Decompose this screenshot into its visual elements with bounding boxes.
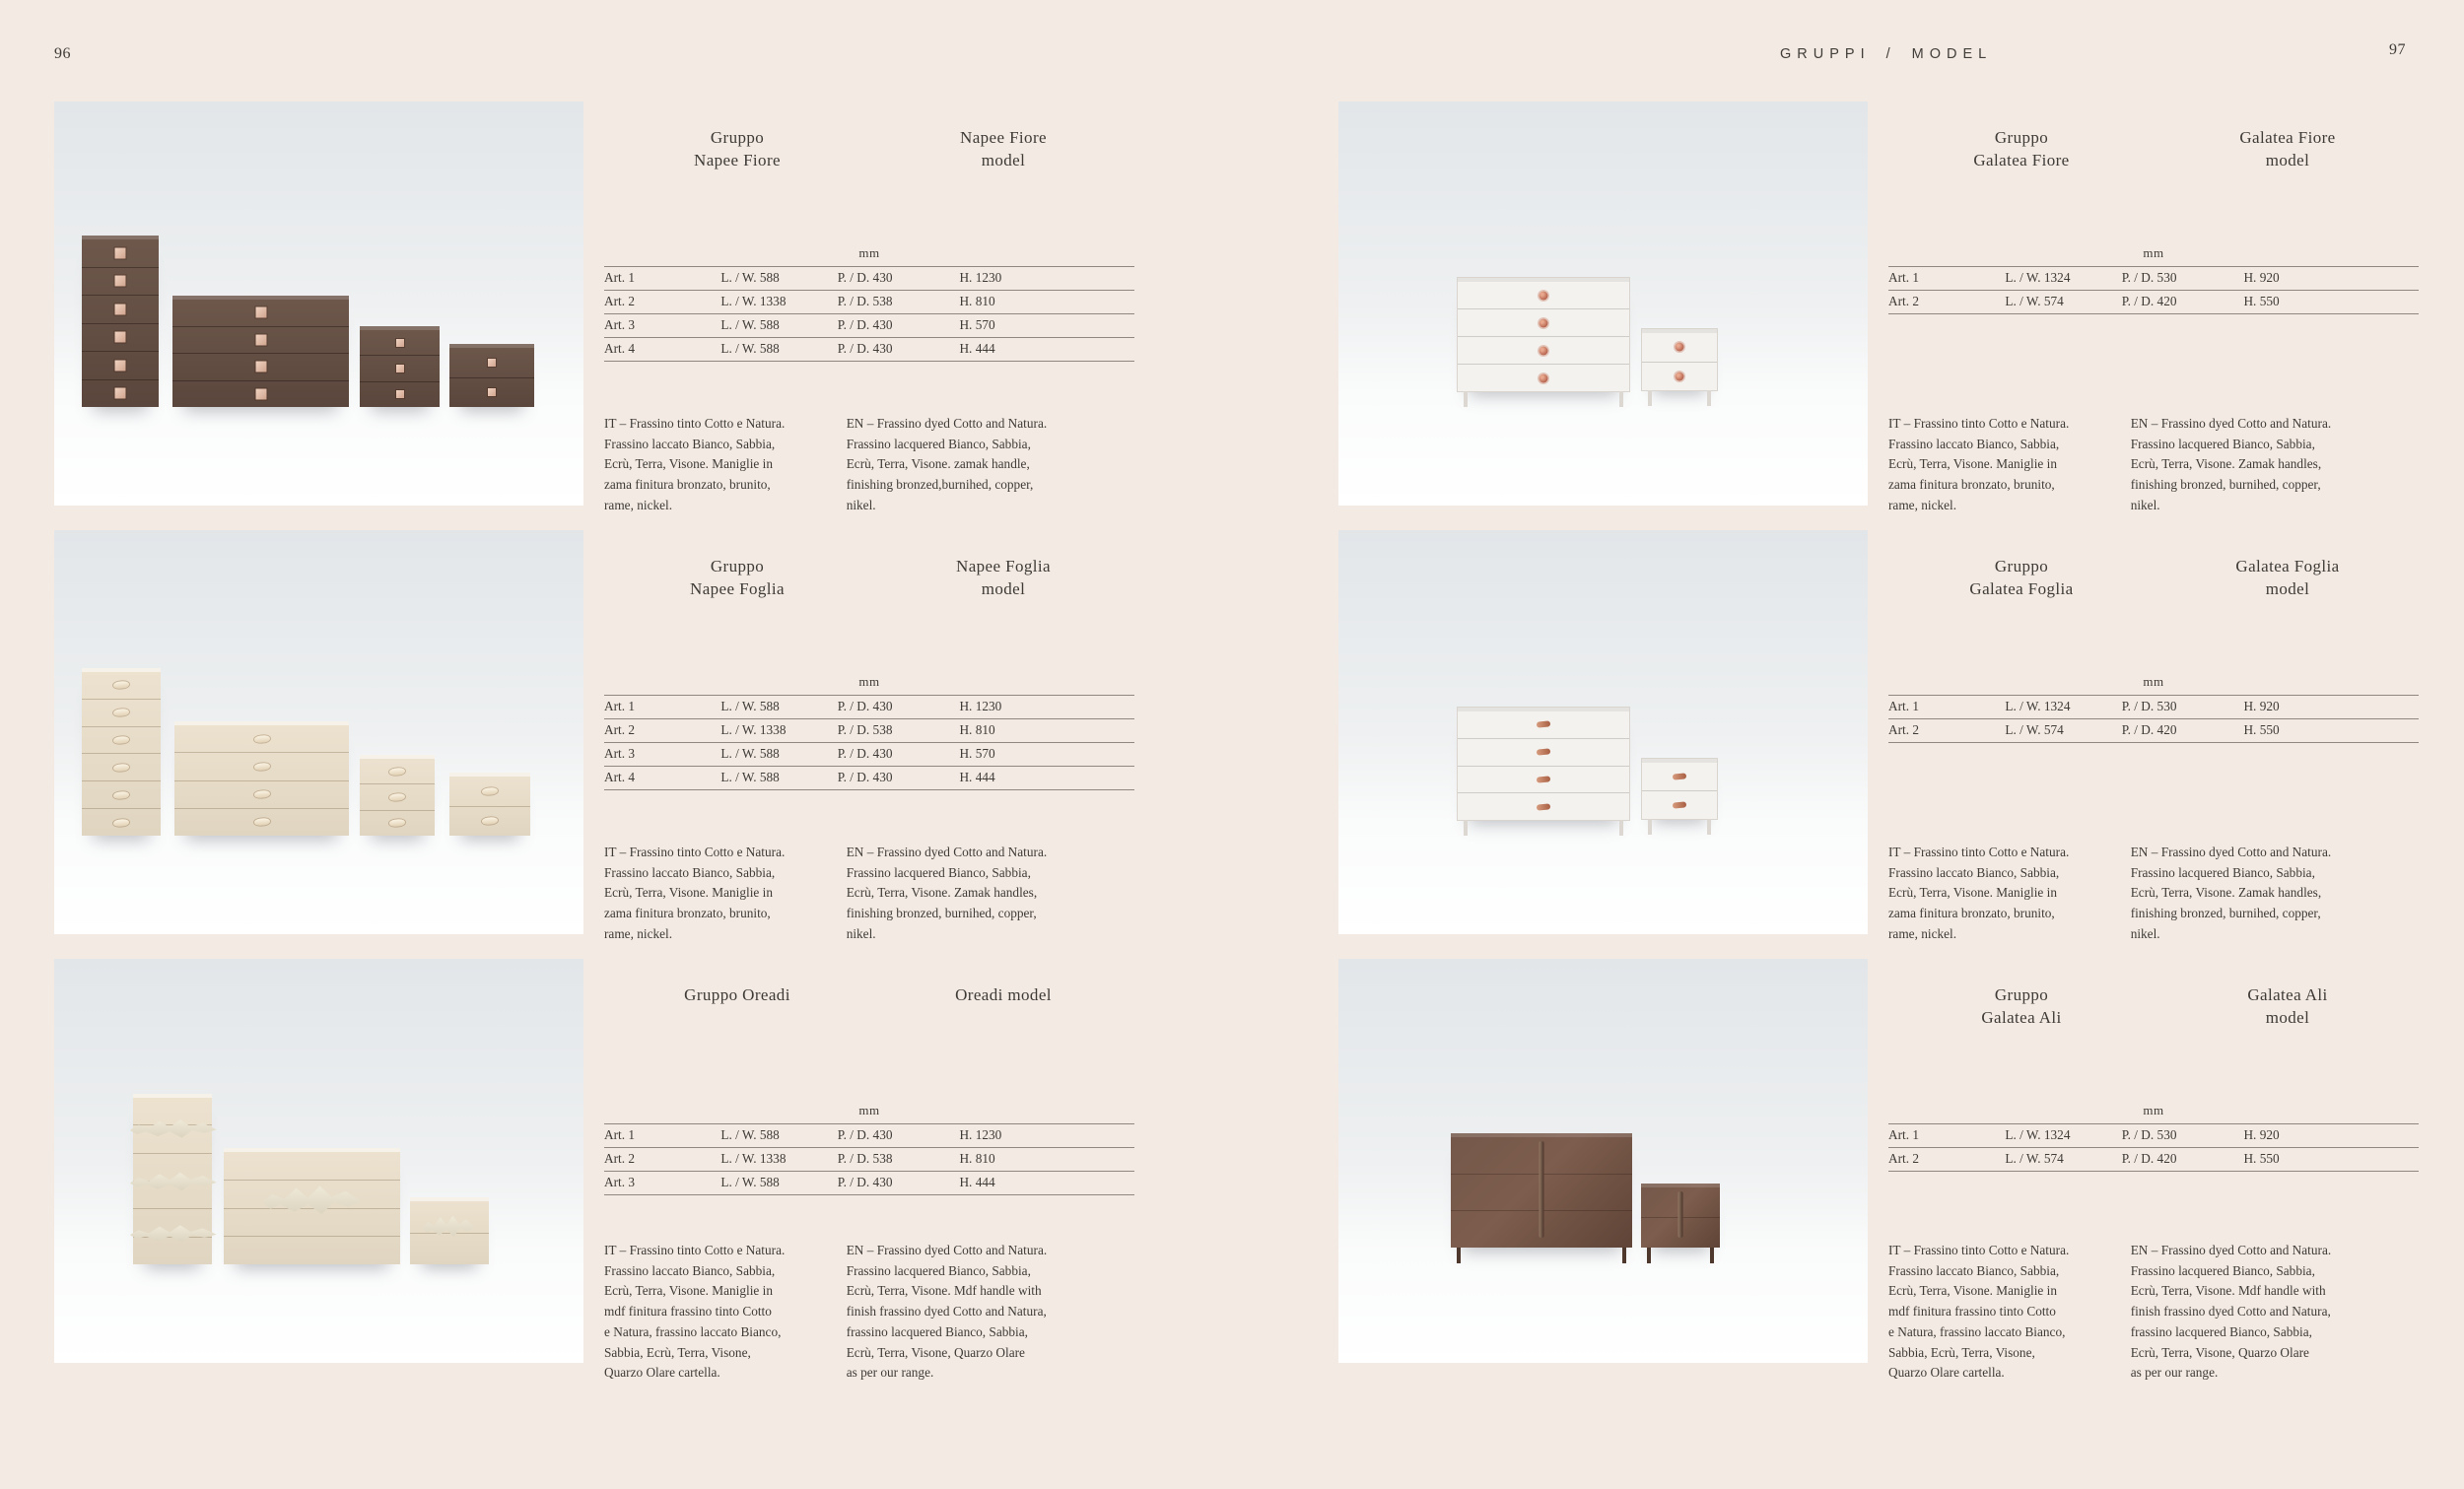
group-title-en: Oreadi model [870, 984, 1136, 1007]
dimension-row: Art. 2L. / W. 1338P. / D. 538H. 810 [604, 719, 1134, 743]
drawer-front [449, 806, 530, 837]
drawer-front [172, 300, 349, 326]
drawer-handle [1540, 373, 1548, 382]
furniture-leg [1619, 391, 1623, 407]
group-info: Gruppo Galatea Fiore Galatea Fiore model… [1888, 102, 2421, 506]
dimension-row: Art. 1L. / W. 1324P. / D. 530H. 920 [1888, 696, 2419, 719]
spread-title: GRUPPI / MODEL [1780, 46, 1992, 62]
dimension-row: Art. 3L. / W. 588P. / D. 430H. 444 [604, 1172, 1134, 1195]
drawer-handle [113, 736, 130, 744]
drawer-handle [115, 276, 126, 287]
drawer-handle [396, 365, 404, 372]
dimension-cell-lw: L. / W. 574 [2005, 291, 2121, 314]
group-title-it: Gruppo Galatea Fiore [1888, 127, 2155, 172]
drawer-handle [115, 304, 126, 314]
drawer-handle [113, 764, 130, 772]
drawer-front [1458, 766, 1629, 793]
group-title-it: Gruppo Galatea Ali [1888, 984, 2155, 1030]
furniture-leg [1648, 819, 1652, 835]
dimension-cell-h: H. 810 [959, 1148, 1134, 1172]
drawer-handle [389, 793, 406, 801]
drawer-handle [253, 734, 270, 742]
group-title-en: Galatea Foglia model [2155, 556, 2421, 601]
small-chest-illustration [360, 326, 440, 407]
description-en: EN – Frassino dyed Cotto and Natura. Fra… [847, 843, 1136, 945]
description-en: EN – Frassino dyed Cotto and Natura. Fra… [847, 414, 1136, 516]
dimension-cell-art: Art. 2 [604, 1148, 720, 1172]
dimension-cell-h: H. 920 [2243, 1124, 2419, 1148]
dimension-cell-pd: P. / D. 538 [838, 291, 960, 314]
drawer-handle [1537, 776, 1551, 782]
dimension-cell-art: Art. 3 [604, 743, 720, 767]
furniture-leg [1647, 1248, 1651, 1263]
drawer-front [82, 323, 159, 352]
group-title-it: Gruppo Galatea Foglia [1888, 556, 2155, 601]
furniture-leg [1648, 390, 1652, 406]
dimension-cell-art: Art. 1 [604, 696, 720, 719]
dimension-cell-pd: P. / D. 538 [838, 1148, 960, 1172]
dimension-cell-pd: P. / D. 430 [838, 1124, 960, 1148]
drawer-front [172, 353, 349, 380]
drawer-handle [1537, 748, 1551, 755]
nightstand-illustration [1641, 1184, 1720, 1248]
drawer-handle [253, 790, 270, 798]
napee-fiore-photo [54, 102, 583, 506]
furniture-leg [1464, 820, 1468, 836]
group-section-galatea-fiore: Gruppo Galatea Fiore Galatea Fiore model… [1338, 102, 2420, 506]
dimension-cell-h: H. 810 [959, 291, 1134, 314]
drawer-front [449, 348, 534, 377]
group-title-it: Gruppo Napee Foglia [604, 556, 870, 601]
description-it: IT – Frassino tinto Cotto e Natura. Fras… [604, 843, 847, 945]
dimension-cell-pd: P. / D. 430 [838, 1172, 960, 1195]
dimension-table: Art. 1L. / W. 588P. / D. 430H. 1230Art. … [604, 1123, 1134, 1195]
dimension-table: Art. 1L. / W. 1324P. / D. 530H. 920Art. … [1888, 266, 2419, 314]
dimension-cell-pd: P. / D. 420 [2122, 1148, 2244, 1172]
furniture-leg [1707, 390, 1711, 406]
drawer-front [1458, 364, 1629, 391]
drawer-front [449, 777, 530, 806]
drawer-front [1458, 711, 1629, 738]
drawer-front [133, 1237, 212, 1264]
drawer-front [1458, 308, 1629, 336]
drawer-handle [115, 247, 126, 258]
drawer-front [1642, 362, 1717, 391]
description-it: IT – Frassino tinto Cotto e Natura. Fras… [1888, 843, 2131, 945]
drawer-front [174, 725, 349, 752]
dimension-cell-art: Art. 1 [1888, 267, 2005, 291]
group-section-galatea-foglia: Gruppo Galatea Foglia Galatea Foglia mod… [1338, 530, 2420, 934]
dresser-illustration [1458, 278, 1629, 391]
drawer-handle [389, 767, 406, 775]
drawer-handle [253, 818, 270, 826]
drawer-front [82, 295, 159, 323]
dimension-cell-lw: L. / W. 1324 [2005, 1124, 2121, 1148]
unit-label: mm [604, 245, 1134, 261]
dimension-table: Art. 1L. / W. 1324P. / D. 530H. 920Art. … [1888, 1123, 2419, 1172]
description-en: EN – Frassino dyed Cotto and Natura. Fra… [2131, 843, 2421, 945]
dimension-cell-lw: L. / W. 588 [720, 267, 837, 291]
dimension-cell-h: H. 570 [959, 743, 1134, 767]
dimension-row: Art. 3L. / W. 588P. / D. 430H. 570 [604, 314, 1134, 338]
dimension-cell-lw: L. / W. 1338 [720, 719, 837, 743]
dimension-table: Art. 1L. / W. 588P. / D. 430H. 1230Art. … [604, 266, 1134, 362]
drawer-front [360, 330, 440, 355]
dimension-cell-art: Art. 2 [1888, 719, 2005, 743]
dimension-cell-art: Art. 1 [604, 267, 720, 291]
unit-label: mm [1888, 674, 2419, 690]
dimension-row: Art. 2L. / W. 574P. / D. 420H. 550 [1888, 719, 2419, 743]
dimension-cell-lw: L. / W. 588 [720, 696, 837, 719]
drawer-handle [255, 388, 266, 399]
unit-label: mm [604, 1103, 1134, 1118]
dresser-illustration [224, 1148, 400, 1264]
dimension-cell-h: H. 444 [959, 338, 1134, 362]
dimension-cell-pd: P. / D. 430 [838, 267, 960, 291]
dimension-cell-h: H. 920 [2243, 267, 2419, 291]
drawer-front [360, 355, 440, 380]
drawer-handle [1540, 291, 1548, 300]
vertical-bar-handle [1678, 1191, 1683, 1238]
description-en: EN – Frassino dyed Cotto and Natura. Fra… [847, 1241, 1136, 1384]
drawer-front [174, 752, 349, 779]
drawer-front [133, 1153, 212, 1181]
group-section-galatea-ali: Gruppo Galatea Ali Galatea Ali model mm … [1338, 959, 2420, 1363]
group-title-en: Galatea Fiore model [2155, 127, 2421, 172]
drawer-front [82, 780, 161, 808]
dimension-cell-h: H. 444 [959, 1172, 1134, 1195]
drawer-handle [1676, 343, 1684, 352]
dresser-illustration [174, 721, 349, 836]
drawer-handle [482, 787, 499, 795]
drawer-handle [113, 791, 130, 799]
dimension-row: Art. 2L. / W. 1338P. / D. 538H. 810 [604, 291, 1134, 314]
nightstand-illustration [1642, 329, 1717, 390]
drawer-front [82, 379, 159, 408]
furniture-leg [1619, 820, 1623, 836]
drawer-handle [1540, 318, 1548, 327]
drawer-front [224, 1236, 400, 1264]
dresser-illustration [172, 296, 349, 407]
unit-label: mm [1888, 1103, 2419, 1118]
dimension-cell-lw: L. / W. 1324 [2005, 696, 2121, 719]
drawer-front [82, 672, 161, 699]
dimension-cell-art: Art. 2 [604, 719, 720, 743]
dimension-cell-art: Art. 3 [604, 1172, 720, 1195]
group-info: Gruppo Napee Foglia Napee Foglia model m… [604, 530, 1136, 934]
description-it: IT – Frassino tinto Cotto e Natura. Fras… [1888, 414, 2131, 516]
dimension-cell-lw: L. / W. 1324 [2005, 267, 2121, 291]
dimension-cell-pd: P. / D. 430 [838, 767, 960, 790]
drawer-front [360, 810, 435, 836]
dimension-row: Art. 2L. / W. 574P. / D. 420H. 550 [1888, 291, 2419, 314]
description-it: IT – Frassino tinto Cotto e Natura. Fras… [604, 414, 847, 516]
drawer-handle [113, 709, 130, 716]
drawer-handle [1537, 803, 1551, 810]
drawer-front [82, 267, 159, 296]
dimension-cell-h: H. 810 [959, 719, 1134, 743]
unit-label: mm [604, 674, 1134, 690]
group-section-oreadi: Gruppo Oreadi Oreadi model mm Art. 1L. /… [54, 959, 1135, 1363]
drawer-front [82, 808, 161, 836]
drawer-front [82, 753, 161, 780]
page-number-left: 96 [54, 45, 71, 63]
dimension-table: Art. 1L. / W. 1324P. / D. 530H. 920Art. … [1888, 695, 2419, 743]
drawer-handle [389, 819, 406, 827]
description-it: IT – Frassino tinto Cotto e Natura. Fras… [604, 1241, 847, 1384]
group-title-en: Napee Foglia model [870, 556, 1136, 601]
nightstand-illustration [449, 344, 534, 407]
furniture-leg [1464, 391, 1468, 407]
dimension-row: Art. 4L. / W. 588P. / D. 430H. 444 [604, 767, 1134, 790]
drawer-handle [255, 362, 266, 372]
dimension-cell-h: H. 570 [959, 314, 1134, 338]
nightstand-illustration [410, 1197, 489, 1264]
drawer-front [1642, 333, 1717, 362]
furniture-leg [1710, 1248, 1714, 1263]
tall-chest-illustration [82, 236, 159, 407]
dimension-row: Art. 2L. / W. 574P. / D. 420H. 550 [1888, 1148, 2419, 1172]
drawer-front [1458, 282, 1629, 308]
dimension-row: Art. 3L. / W. 588P. / D. 430H. 570 [604, 743, 1134, 767]
dimension-row: Art. 1L. / W. 1324P. / D. 530H. 920 [1888, 1124, 2419, 1148]
page-number-right: 97 [2389, 41, 2406, 59]
dimension-cell-art: Art. 2 [1888, 1148, 2005, 1172]
dimension-cell-lw: L. / W. 1338 [720, 1148, 837, 1172]
dimension-cell-art: Art. 2 [1888, 291, 2005, 314]
dimension-cell-art: Art. 1 [1888, 1124, 2005, 1148]
dimension-cell-h: H. 1230 [959, 1124, 1134, 1148]
drawer-front [1458, 792, 1629, 820]
nightstand-illustration [449, 773, 530, 836]
dimension-cell-h: H. 550 [2243, 1148, 2419, 1172]
dimension-cell-lw: L. / W. 574 [2005, 1148, 2121, 1172]
group-section-napee-fiore: Gruppo Napee Fiore Napee Fiore model mm … [54, 102, 1135, 506]
dimension-row: Art. 4L. / W. 588P. / D. 430H. 444 [604, 338, 1134, 362]
dimension-cell-h: H. 1230 [959, 696, 1134, 719]
group-title-en: Napee Fiore model [870, 127, 1136, 172]
group-title-it: Gruppo Oreadi [604, 984, 870, 1007]
drawer-handle [396, 390, 404, 398]
description-en: EN – Frassino dyed Cotto and Natura. Fra… [2131, 1241, 2421, 1384]
drawer-handle [482, 817, 499, 825]
dimension-cell-h: H. 550 [2243, 719, 2419, 743]
dimension-cell-pd: P. / D. 430 [838, 743, 960, 767]
group-title-en: Galatea Ali model [2155, 984, 2421, 1030]
drawer-front [1458, 738, 1629, 766]
drawer-front [133, 1098, 212, 1124]
furniture-leg [1707, 819, 1711, 835]
dimension-cell-lw: L. / W. 588 [720, 338, 837, 362]
dimension-cell-art: Art. 1 [1888, 696, 2005, 719]
dimension-cell-lw: L. / W. 588 [720, 314, 837, 338]
dimension-cell-lw: L. / W. 588 [720, 1124, 837, 1148]
dimension-row: Art. 1L. / W. 588P. / D. 430H. 1230 [604, 267, 1134, 291]
drawer-front [82, 699, 161, 726]
dresser-illustration [1451, 1133, 1632, 1248]
dimension-cell-pd: P. / D. 420 [2122, 719, 2244, 743]
vertical-bar-handle [1540, 1141, 1544, 1237]
furniture-leg [1622, 1248, 1626, 1263]
dimension-cell-art: Art. 4 [604, 767, 720, 790]
dimension-cell-art: Art. 4 [604, 338, 720, 362]
drawer-handle [1540, 346, 1548, 355]
galatea-foglia-photo [1338, 530, 1868, 934]
drawer-handle [115, 332, 126, 343]
small-chest-illustration [360, 755, 435, 836]
drawer-handle [488, 388, 496, 396]
drawer-handle [488, 359, 496, 367]
tall-chest-illustration [82, 668, 161, 836]
dimension-table: Art. 1L. / W. 588P. / D. 430H. 1230Art. … [604, 695, 1134, 790]
dimension-cell-pd: P. / D. 538 [838, 719, 960, 743]
drawer-handle [255, 334, 266, 345]
dimension-cell-pd: P. / D. 530 [2122, 267, 2244, 291]
drawer-handle [255, 307, 266, 318]
furniture-leg [1457, 1248, 1461, 1263]
drawer-handle [113, 681, 130, 689]
drawer-handle [1537, 721, 1551, 728]
unit-label: mm [1888, 245, 2419, 261]
group-section-napee-foglia: Gruppo Napee Foglia Napee Foglia model m… [54, 530, 1135, 934]
description-it: IT – Frassino tinto Cotto e Natura. Fras… [1888, 1241, 2131, 1384]
catalog-spread: 96 GRUPPI / MODEL 97 Gruppo Napee Fiore … [0, 0, 2464, 1489]
drawer-front [449, 377, 534, 408]
drawer-front [172, 380, 349, 408]
oreadi-photo [54, 959, 583, 1363]
drawer-front [174, 808, 349, 836]
dimension-cell-lw: L. / W. 588 [720, 743, 837, 767]
drawer-handle [113, 818, 130, 826]
galatea-ali-photo [1338, 959, 1868, 1363]
drawer-front [224, 1152, 400, 1180]
dimension-cell-lw: L. / W. 574 [2005, 719, 2121, 743]
nightstand-illustration [1642, 759, 1717, 819]
dimension-cell-h: H. 1230 [959, 267, 1134, 291]
dimension-cell-pd: P. / D. 420 [2122, 291, 2244, 314]
dimension-cell-pd: P. / D. 430 [838, 338, 960, 362]
dimension-cell-lw: L. / W. 588 [720, 767, 837, 790]
dimension-cell-pd: P. / D. 430 [838, 314, 960, 338]
description-en: EN – Frassino dyed Cotto and Natura. Fra… [2131, 414, 2421, 516]
dimension-cell-pd: P. / D. 530 [2122, 1124, 2244, 1148]
group-info: Gruppo Napee Fiore Napee Fiore model mm … [604, 102, 1136, 506]
drawer-handle [115, 360, 126, 371]
dimension-cell-h: H. 920 [2243, 696, 2419, 719]
dimension-cell-art: Art. 2 [604, 291, 720, 314]
dimension-row: Art. 1L. / W. 588P. / D. 430H. 1230 [604, 1124, 1134, 1148]
drawer-front [1642, 763, 1717, 790]
dimension-row: Art. 2L. / W. 1338P. / D. 538H. 810 [604, 1148, 1134, 1172]
group-info: Gruppo Oreadi Oreadi model mm Art. 1L. /… [604, 959, 1136, 1363]
drawer-front [360, 759, 435, 783]
dimension-row: Art. 1L. / W. 1324P. / D. 530H. 920 [1888, 267, 2419, 291]
drawer-front [1458, 336, 1629, 364]
dimension-cell-pd: P. / D. 530 [2122, 696, 2244, 719]
galatea-fiore-photo [1338, 102, 1868, 506]
drawer-front [82, 239, 159, 267]
drawer-handle [1673, 801, 1687, 808]
drawer-front [1642, 790, 1717, 819]
drawer-front [172, 326, 349, 354]
drawer-front [410, 1233, 489, 1265]
dimension-row: Art. 1L. / W. 588P. / D. 430H. 1230 [604, 696, 1134, 719]
dimension-cell-h: H. 444 [959, 767, 1134, 790]
drawer-front [224, 1208, 400, 1237]
drawer-handle [253, 763, 270, 771]
drawer-front [82, 351, 159, 379]
drawer-handle [396, 339, 404, 347]
drawer-handle [115, 388, 126, 399]
drawer-front [82, 726, 161, 754]
drawer-handle [1676, 372, 1684, 380]
dimension-cell-art: Art. 1 [604, 1124, 720, 1148]
drawer-front [174, 780, 349, 808]
group-title-it: Gruppo Napee Fiore [604, 127, 870, 172]
drawer-handle [1673, 773, 1687, 779]
dimension-cell-lw: L. / W. 1338 [720, 291, 837, 314]
dimension-cell-art: Art. 3 [604, 314, 720, 338]
dimension-cell-pd: P. / D. 430 [838, 696, 960, 719]
dresser-illustration [1458, 708, 1629, 820]
drawer-front [360, 783, 435, 809]
group-info: Gruppo Galatea Ali Galatea Ali model mm … [1888, 959, 2421, 1363]
tall-chest-illustration [133, 1094, 212, 1264]
group-info: Gruppo Galatea Foglia Galatea Foglia mod… [1888, 530, 2421, 934]
dimension-cell-h: H. 550 [2243, 291, 2419, 314]
napee-foglia-photo [54, 530, 583, 934]
dimension-cell-lw: L. / W. 588 [720, 1172, 837, 1195]
drawer-front [360, 381, 440, 407]
